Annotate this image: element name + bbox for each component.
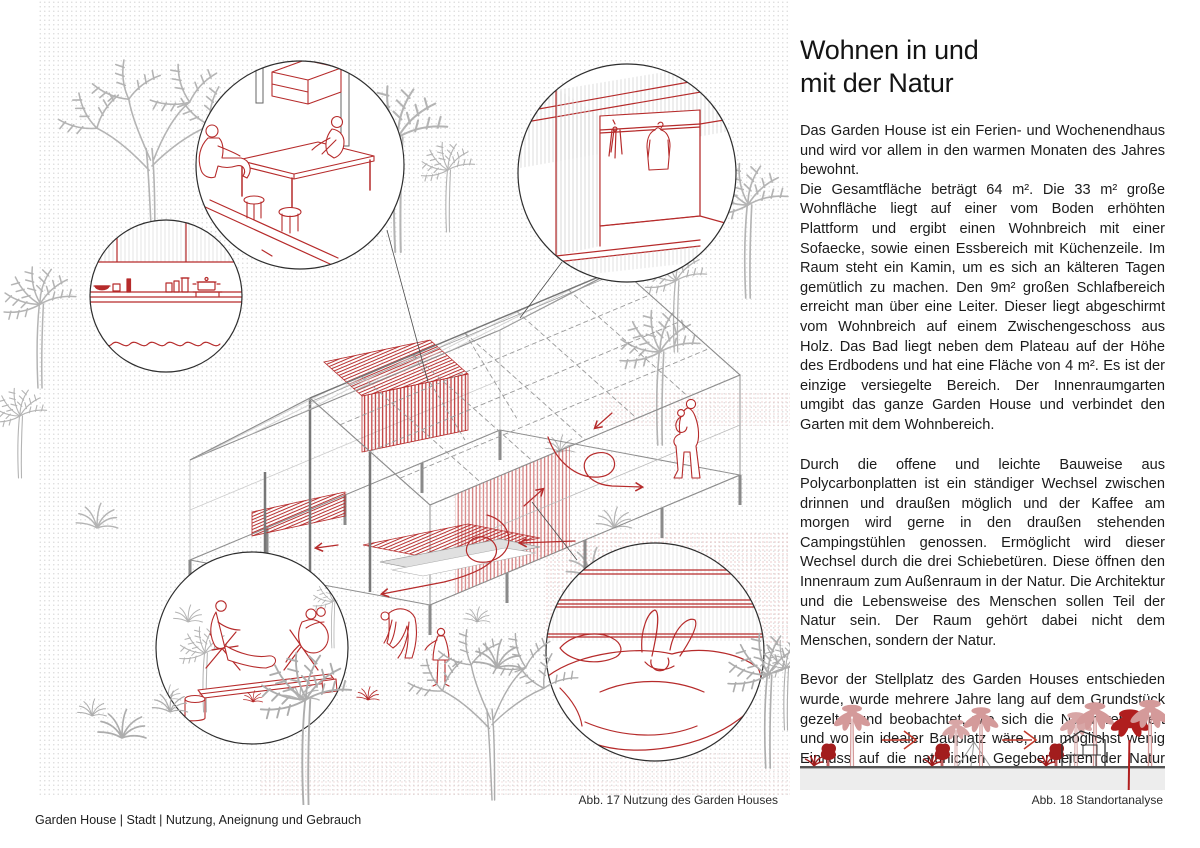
callout-dining-area [196, 46, 404, 269]
ground-band [800, 768, 1165, 790]
callout-sleeping-area [540, 543, 770, 766]
body-paragraph-2: Durch die offene und leichte Bauweise au… [800, 456, 1165, 652]
small-arrow [316, 545, 338, 548]
house-icon [1062, 731, 1105, 766]
axonometric-drawing [0, 0, 790, 805]
callout-kitchen-shelf [90, 220, 242, 372]
process-arrow [1002, 731, 1036, 749]
figure-child [425, 628, 449, 686]
site-stage-1-nature [805, 705, 872, 766]
page-title: Wohnen in und mit der Natur [800, 34, 1165, 100]
site-stage-2-tent [923, 707, 1000, 766]
figure-caption-site: Abb. 18 Standortanalyse [1000, 793, 1163, 807]
ground-line [800, 766, 1165, 768]
callout-wardrobe [518, 60, 737, 282]
figure-adult-with-child [674, 399, 700, 478]
site-analysis-diagram [800, 698, 1165, 790]
body-paragraph-1: Das Garden House ist ein Ferien- und Woc… [800, 122, 1165, 436]
footer-project-line: Garden House | Stadt | Nutzung, Aneignun… [35, 813, 361, 827]
article-column: Wohnen in und mit der Natur Das Garden H… [800, 34, 1165, 809]
figure-caption-main: Abb. 17 Nutzung des Garden Houses [560, 793, 778, 807]
figure-gardener [381, 609, 416, 658]
tent-icon [958, 742, 990, 766]
small-arrow [595, 413, 612, 428]
process-arrow [882, 731, 916, 749]
presentation-board: Wohnen in und mit der Natur Das Garden H… [0, 0, 1200, 848]
red-floor-areas [252, 340, 540, 576]
callout-garden-lounge [155, 552, 353, 744]
